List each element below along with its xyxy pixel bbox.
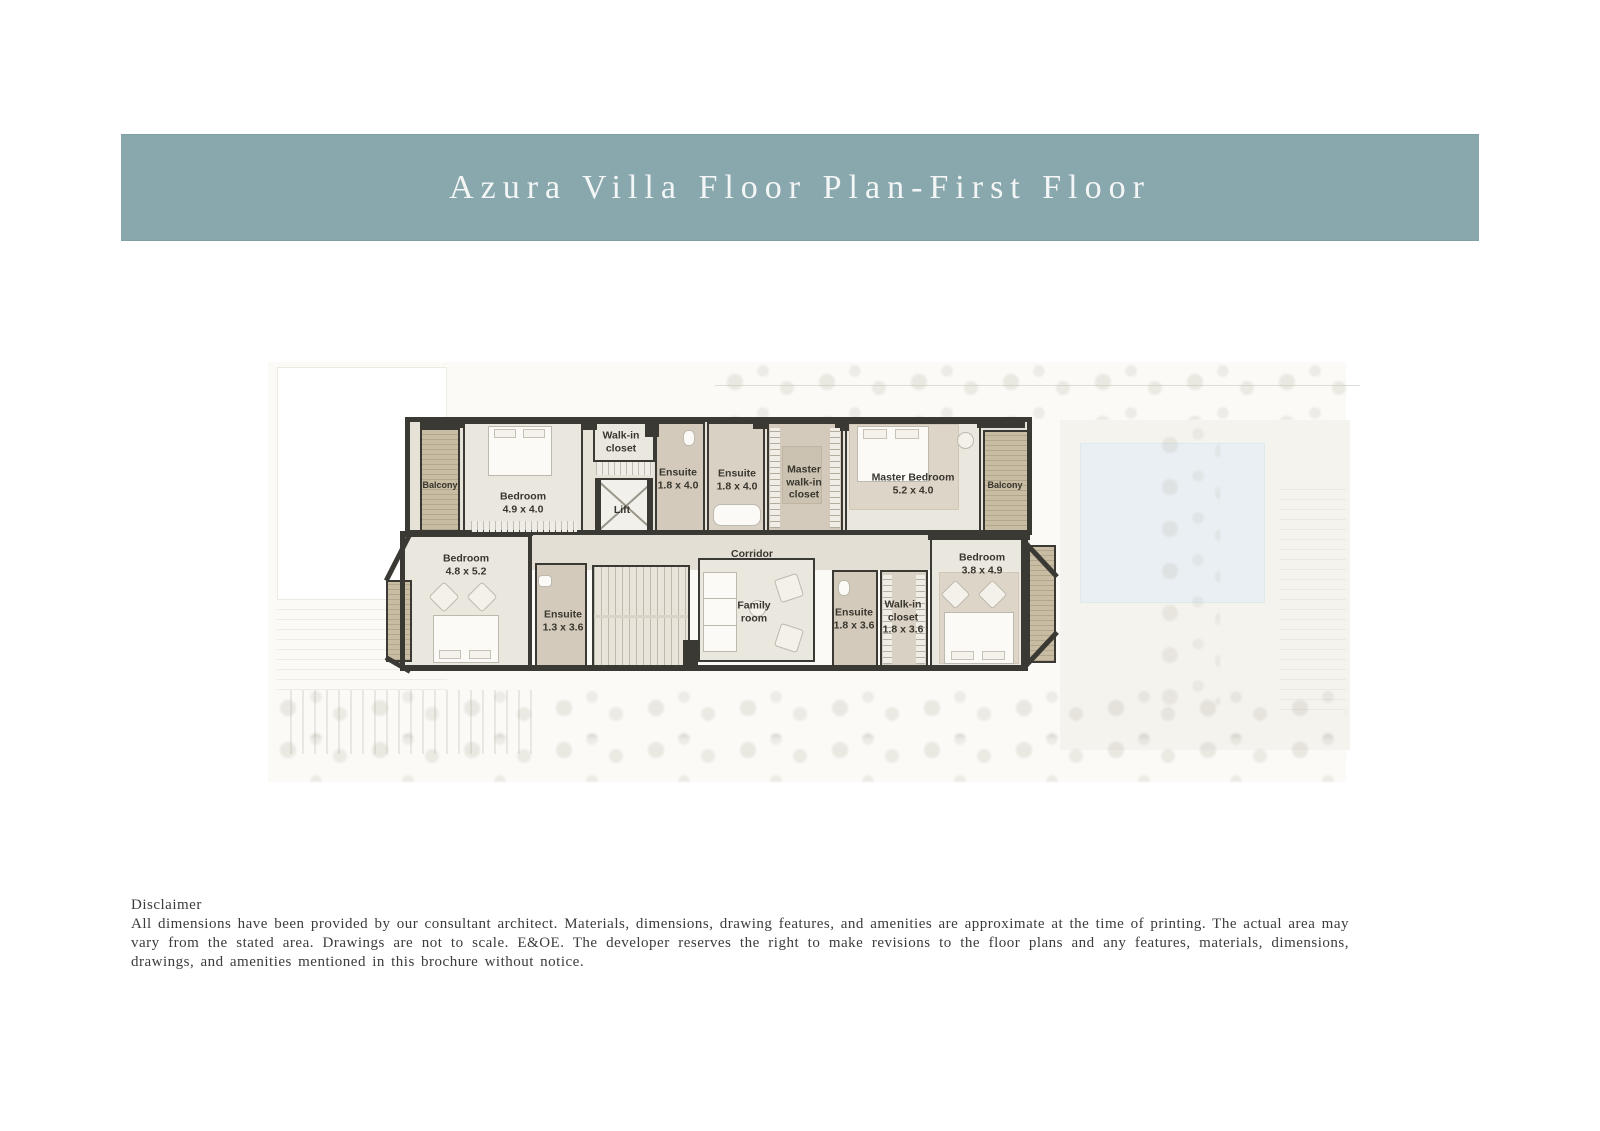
- room-label-master-bedroom: Master Bedroom 5.2 x 4.0: [865, 472, 961, 497]
- room-label-balcony-right: Balcony: [987, 479, 1022, 492]
- bathtub-symbol: [713, 504, 761, 526]
- room-label-ensuite-a: Ensuite 1.8 x 4.0: [658, 467, 699, 492]
- closet-shelves-master-right: [830, 428, 840, 528]
- toilet-symbol: [838, 580, 850, 596]
- room-label-balcony-left: Balcony: [422, 479, 457, 492]
- disclaimer: Disclaimer All dimensions have been prov…: [131, 896, 1349, 972]
- room-label-ensuite-c: Ensuite 1.3 x 3.6: [543, 609, 584, 634]
- column: [645, 417, 659, 437]
- wall-bedroom3-top: [928, 535, 1030, 540]
- page-title: Azura Villa Floor Plan-First Floor: [449, 169, 1151, 207]
- fence-bottom-left: [290, 690, 540, 754]
- room-label-bedroom-3: Bedroom 3.8 x 4.9: [959, 552, 1005, 577]
- room-label-ensuite-b: Ensuite 1.8 x 4.0: [717, 468, 758, 493]
- pillow-symbol: [895, 429, 919, 439]
- room-label-bedroom-1: Bedroom 4.9 x 4.0: [500, 491, 546, 516]
- column: [683, 640, 698, 669]
- toilet-symbol: [683, 430, 695, 446]
- column: [977, 419, 1025, 428]
- pillow-symbol: [951, 651, 974, 660]
- right-garden-lines: [1280, 480, 1346, 710]
- floor-plan: Balcony Bedroom 4.9 x 4.0 Walk-in closet…: [383, 400, 1063, 680]
- sofa-cushion-line: [703, 625, 737, 626]
- room-label-walk-in-closet-2: Walk-in closet 1.8 x 3.6: [879, 598, 927, 636]
- boundary-line-top: [715, 385, 1360, 386]
- sink-symbol: [538, 575, 552, 587]
- pillow-symbol: [494, 429, 516, 438]
- chair-symbol: [957, 432, 974, 449]
- pillow-symbol: [523, 429, 545, 438]
- left-terrace-deck: [386, 580, 412, 662]
- room-label-master-walk-in-closet: Master walk-in closet: [777, 463, 831, 501]
- closet-shelves-1: [596, 462, 652, 475]
- column: [420, 419, 464, 428]
- room-label-corridor: Corridor: [731, 548, 773, 561]
- stair-landing-line: [594, 615, 688, 618]
- pillow-symbol: [863, 429, 887, 439]
- room-label-family-room: Family room: [730, 600, 778, 625]
- tree-column-right: [1150, 425, 1220, 705]
- room-label-ensuite-d: Ensuite 1.8 x 3.6: [834, 607, 875, 632]
- disclaimer-heading: Disclaimer: [131, 896, 1349, 915]
- room-label-walk-in-closet-1: Walk-in closet: [596, 430, 646, 455]
- pillow-symbol: [469, 650, 491, 659]
- pillow-symbol: [982, 651, 1005, 660]
- disclaimer-body: All dimensions have been provided by our…: [131, 915, 1349, 972]
- room-label-lift: Lift: [614, 504, 630, 517]
- wall-bedroom3-right: [1023, 537, 1028, 669]
- column: [581, 417, 597, 430]
- wall-lower-left: [400, 531, 405, 671]
- room-label-bedroom-2: Bedroom 4.8 x 5.2: [443, 553, 489, 578]
- pillow-symbol: [439, 650, 461, 659]
- wall-bottom: [400, 665, 1028, 671]
- column: [753, 417, 769, 429]
- header-banner: Azura Villa Floor Plan-First Floor: [121, 134, 1479, 241]
- wardrobe-symbol: [471, 521, 577, 532]
